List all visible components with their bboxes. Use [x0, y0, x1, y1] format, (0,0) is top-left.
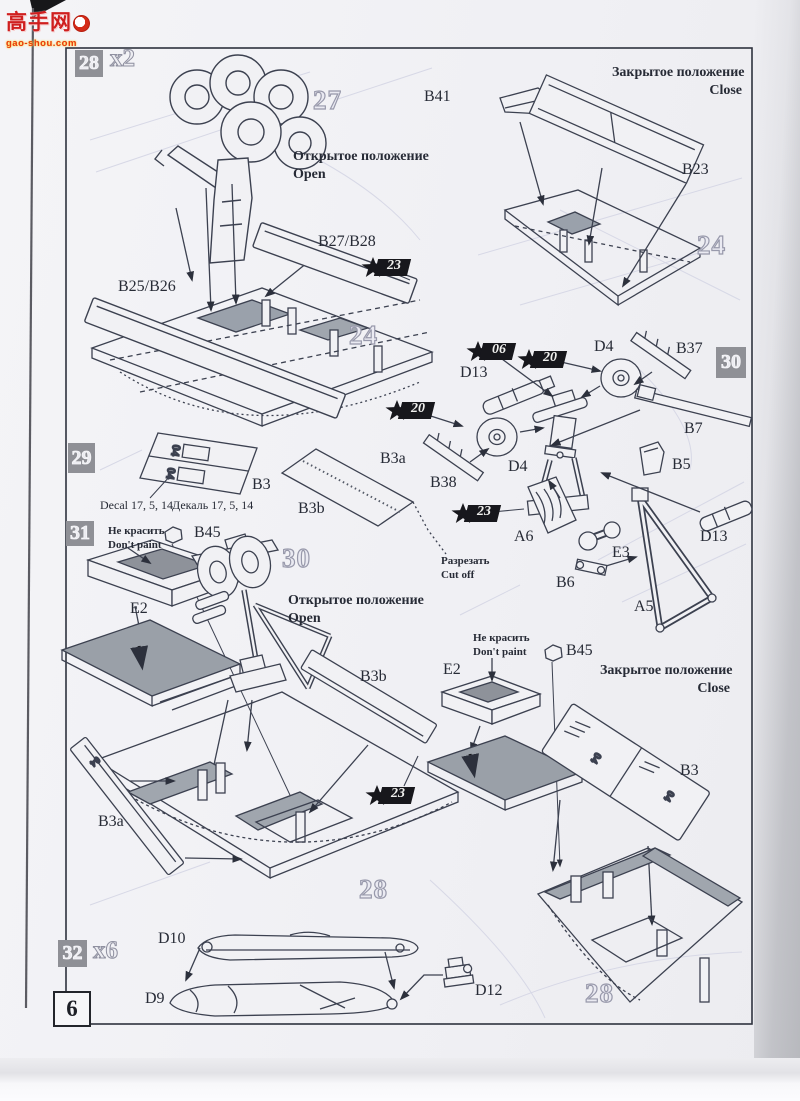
part-label-a5: A5 — [634, 598, 654, 616]
part-label-d13-top: D13 — [460, 364, 488, 382]
note-open-en: Open — [288, 610, 424, 628]
note-dont-paint-en: Don't paint — [108, 539, 165, 553]
part-label-b3a-door: B3a — [98, 813, 124, 831]
paint-callout-23c: 23 — [372, 785, 416, 806]
callout-number: 23 — [469, 504, 499, 520]
part-label-b45-left: B45 — [194, 524, 221, 542]
step-28-box: 28 — [75, 50, 103, 77]
paint-callout-23b: 23 — [458, 503, 502, 524]
ref-28-mid: 28 — [359, 874, 388, 905]
part-label-b7: B7 — [684, 420, 703, 438]
watermark-title: 高手网 — [6, 6, 126, 36]
note-close-en: Close — [600, 680, 730, 698]
note-close-en: Close — [612, 82, 742, 100]
step-32-qty: x6 — [93, 937, 118, 965]
callout-number: 06 — [484, 342, 514, 358]
note-close-ru: Закрытое положение — [600, 662, 730, 680]
paint-callout-20b: 20 — [392, 400, 436, 421]
part-label-d9: D9 — [145, 990, 165, 1008]
bottom-right-bay-drawing — [538, 848, 742, 1002]
part-label-d12: D12 — [475, 982, 503, 1000]
part-label-b41: B41 — [424, 88, 451, 106]
note-cut-off: Разрезать Cut off — [441, 555, 490, 583]
fuel-tank-drawing — [170, 932, 474, 1016]
ref-27: 27 — [313, 85, 342, 116]
decal-sheet-b3-drawing: 04 04 — [140, 433, 257, 498]
note-dont-paint-left: Не красить Don't paint — [108, 525, 165, 553]
part-label-d4-bottom: D4 — [508, 458, 528, 476]
part-label-e2-left: E2 — [130, 600, 148, 618]
page-number-box: 6 — [53, 991, 91, 1027]
paint-callout-20: 20 — [524, 349, 568, 370]
step-32-box: 32 — [58, 940, 87, 967]
note-close-top: Закрытое положение Close — [612, 64, 742, 100]
note-decal-en: Decal 17, 5, 14 — [100, 498, 173, 513]
note-dont-paint-en: Don't paint — [473, 646, 530, 660]
part-label-b3b-mid: B3b — [360, 668, 387, 686]
scan-artifacts — [26, 0, 66, 1008]
part-label-b5: B5 — [672, 456, 691, 474]
part-label-d10: D10 — [158, 930, 186, 948]
note-close-ru: Закрытое положение — [612, 64, 742, 82]
part-label-b3b-cut: B3b — [298, 500, 325, 518]
note-dont-paint-ru: Не красить — [108, 525, 165, 539]
part-label-b3a-cut: B3a — [380, 450, 406, 468]
note-decal-ru: Декаль 17, 5, 14 — [172, 498, 253, 513]
mascot-icon — [73, 15, 90, 32]
part-label-b38: B38 — [430, 474, 457, 492]
ref-24-left: 24 — [349, 320, 378, 351]
scanned-page: 04 04 — [0, 0, 800, 1101]
note-dont-paint-ru: Не красить — [473, 632, 530, 646]
part-label-b25-b26: B25/B26 — [118, 278, 176, 296]
callout-number: 20 — [403, 401, 433, 417]
decal-mark-text: 04 — [163, 466, 179, 480]
watermark-logo: 高手网 gao-shou.com — [6, 6, 126, 49]
part-label-b27-b28: B27/B28 — [318, 233, 376, 251]
callout-number: 20 — [535, 350, 565, 366]
note-open-en: Open — [293, 166, 429, 184]
page-number: 6 — [66, 996, 78, 1022]
ref-28-bottom: 28 — [585, 978, 614, 1009]
scan-bottom-edge — [0, 1058, 800, 1101]
callout-number: 23 — [383, 786, 413, 802]
part-label-e2-right: E2 — [443, 661, 461, 679]
step-31-box: 31 — [66, 521, 94, 546]
note-open-mid: Открытое положение Open — [288, 592, 424, 628]
watermark-title-text: 高手网 — [6, 11, 72, 34]
decal-mark-text: 04 — [168, 443, 184, 457]
part-label-d13-bottom: D13 — [700, 528, 728, 546]
part-label-b3-sheet: B3 — [252, 476, 271, 494]
part-label-e3: E3 — [612, 544, 630, 562]
note-close-bottom: Закрытое положение Close — [600, 662, 730, 698]
callout-number: 23 — [379, 258, 409, 274]
note-open-ru: Открытое положение — [293, 148, 429, 166]
watermark-site: gao-shou.com — [6, 38, 126, 49]
note-open-top: Открытое положение Open — [293, 148, 429, 184]
part-label-a6: A6 — [514, 528, 534, 546]
step-30-box: 30 — [716, 347, 746, 378]
note-open-ru: Открытое положение — [288, 592, 424, 610]
paint-callout-06: 06 — [473, 341, 517, 362]
note-cut-ru: Разрезать — [441, 555, 490, 569]
step-28-qty: x2 — [110, 45, 135, 73]
part-label-b45-right: B45 — [566, 642, 593, 660]
part-label-b3-door: B3 — [680, 762, 699, 780]
closed-bay-right-drawing — [500, 75, 704, 305]
part-label-d4-top: D4 — [594, 338, 614, 356]
part-label-b6: B6 — [556, 574, 575, 592]
ref-24-right: 24 — [697, 230, 726, 261]
step-29-box: 29 — [68, 443, 95, 473]
note-cut-en: Cut off — [441, 569, 490, 583]
scan-right-edge — [754, 0, 800, 1101]
note-dont-paint-right: Не красить Don't paint — [473, 632, 530, 660]
paint-callout-23: 23 — [368, 257, 412, 278]
ref-30-mid: 30 — [282, 543, 311, 574]
part-label-b23: B23 — [682, 161, 709, 179]
part-label-b37: B37 — [676, 340, 703, 358]
